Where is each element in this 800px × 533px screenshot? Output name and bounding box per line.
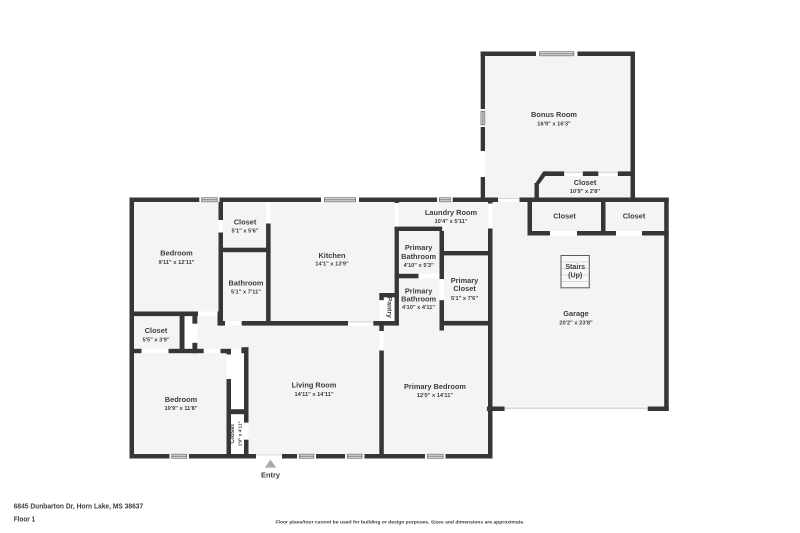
- svg-text:1'9" x 4'11": 1'9" x 4'11": [238, 421, 244, 446]
- svg-text:Bedroom: Bedroom: [160, 249, 193, 258]
- svg-text:12'0" x 14'11": 12'0" x 14'11": [417, 393, 454, 399]
- svg-text:Bedroom: Bedroom: [165, 395, 198, 404]
- svg-text:(Up): (Up): [568, 272, 583, 280]
- svg-text:20'2" x 23'8": 20'2" x 23'8": [559, 320, 593, 326]
- svg-text:Stairs: Stairs: [565, 263, 585, 271]
- svg-text:Floor plans/tour cannot be use: Floor plans/tour cannot be used for buil…: [276, 520, 526, 526]
- svg-text:5'1" x 7'11": 5'1" x 7'11": [231, 289, 261, 295]
- svg-text:Closet: Closet: [623, 212, 646, 221]
- svg-text:6845 Dunbarton Dr, Horn Lake,: 6845 Dunbarton Dr, Horn Lake, MS 38637: [14, 502, 144, 511]
- svg-text:5'1" x 5'6": 5'1" x 5'6": [231, 229, 258, 235]
- svg-text:Garage: Garage: [563, 309, 588, 318]
- svg-text:Laundry Room: Laundry Room: [425, 208, 478, 217]
- svg-text:10'9" x 11'8": 10'9" x 11'8": [164, 406, 197, 412]
- svg-text:5'5" x 3'9": 5'5" x 3'9": [142, 337, 169, 343]
- svg-text:Closet: Closet: [145, 326, 168, 335]
- svg-text:4'10" x 4'11": 4'10" x 4'11": [402, 305, 435, 311]
- svg-text:Living Room: Living Room: [292, 381, 337, 390]
- svg-text:10'4" x 5'11": 10'4" x 5'11": [434, 219, 467, 225]
- svg-text:10'9" x 2'8": 10'9" x 2'8": [570, 189, 601, 195]
- svg-text:Bathroom: Bathroom: [401, 252, 436, 261]
- svg-text:Kitchen: Kitchen: [318, 251, 346, 260]
- svg-text:Bonus Room: Bonus Room: [531, 110, 577, 119]
- svg-text:Closet: Closet: [453, 284, 476, 293]
- svg-text:5'1" x 7'6": 5'1" x 7'6": [451, 296, 478, 302]
- svg-text:9'11" x 12'11": 9'11" x 12'11": [159, 260, 195, 266]
- svg-text:4'10" x 5'3": 4'10" x 5'3": [403, 263, 434, 269]
- svg-text:Primary Bedroom: Primary Bedroom: [404, 382, 466, 391]
- svg-text:Entry: Entry: [261, 470, 281, 479]
- svg-text:Closet: Closet: [229, 423, 236, 443]
- svg-text:Bathroom: Bathroom: [229, 279, 264, 288]
- svg-text:Pantry: Pantry: [385, 297, 392, 318]
- svg-text:Bathroom: Bathroom: [401, 294, 436, 303]
- svg-text:Floor 1: Floor 1: [14, 517, 36, 524]
- svg-text:Primary: Primary: [405, 243, 433, 252]
- svg-text:16'9" x 16'3": 16'9" x 16'3": [537, 121, 571, 127]
- svg-text:Closet: Closet: [234, 218, 257, 227]
- svg-text:14'1" x 13'9": 14'1" x 13'9": [315, 261, 349, 267]
- svg-text:14'11" x 14'11": 14'11" x 14'11": [294, 392, 333, 398]
- svg-text:Closet: Closet: [574, 178, 597, 187]
- svg-text:Closet: Closet: [553, 212, 576, 221]
